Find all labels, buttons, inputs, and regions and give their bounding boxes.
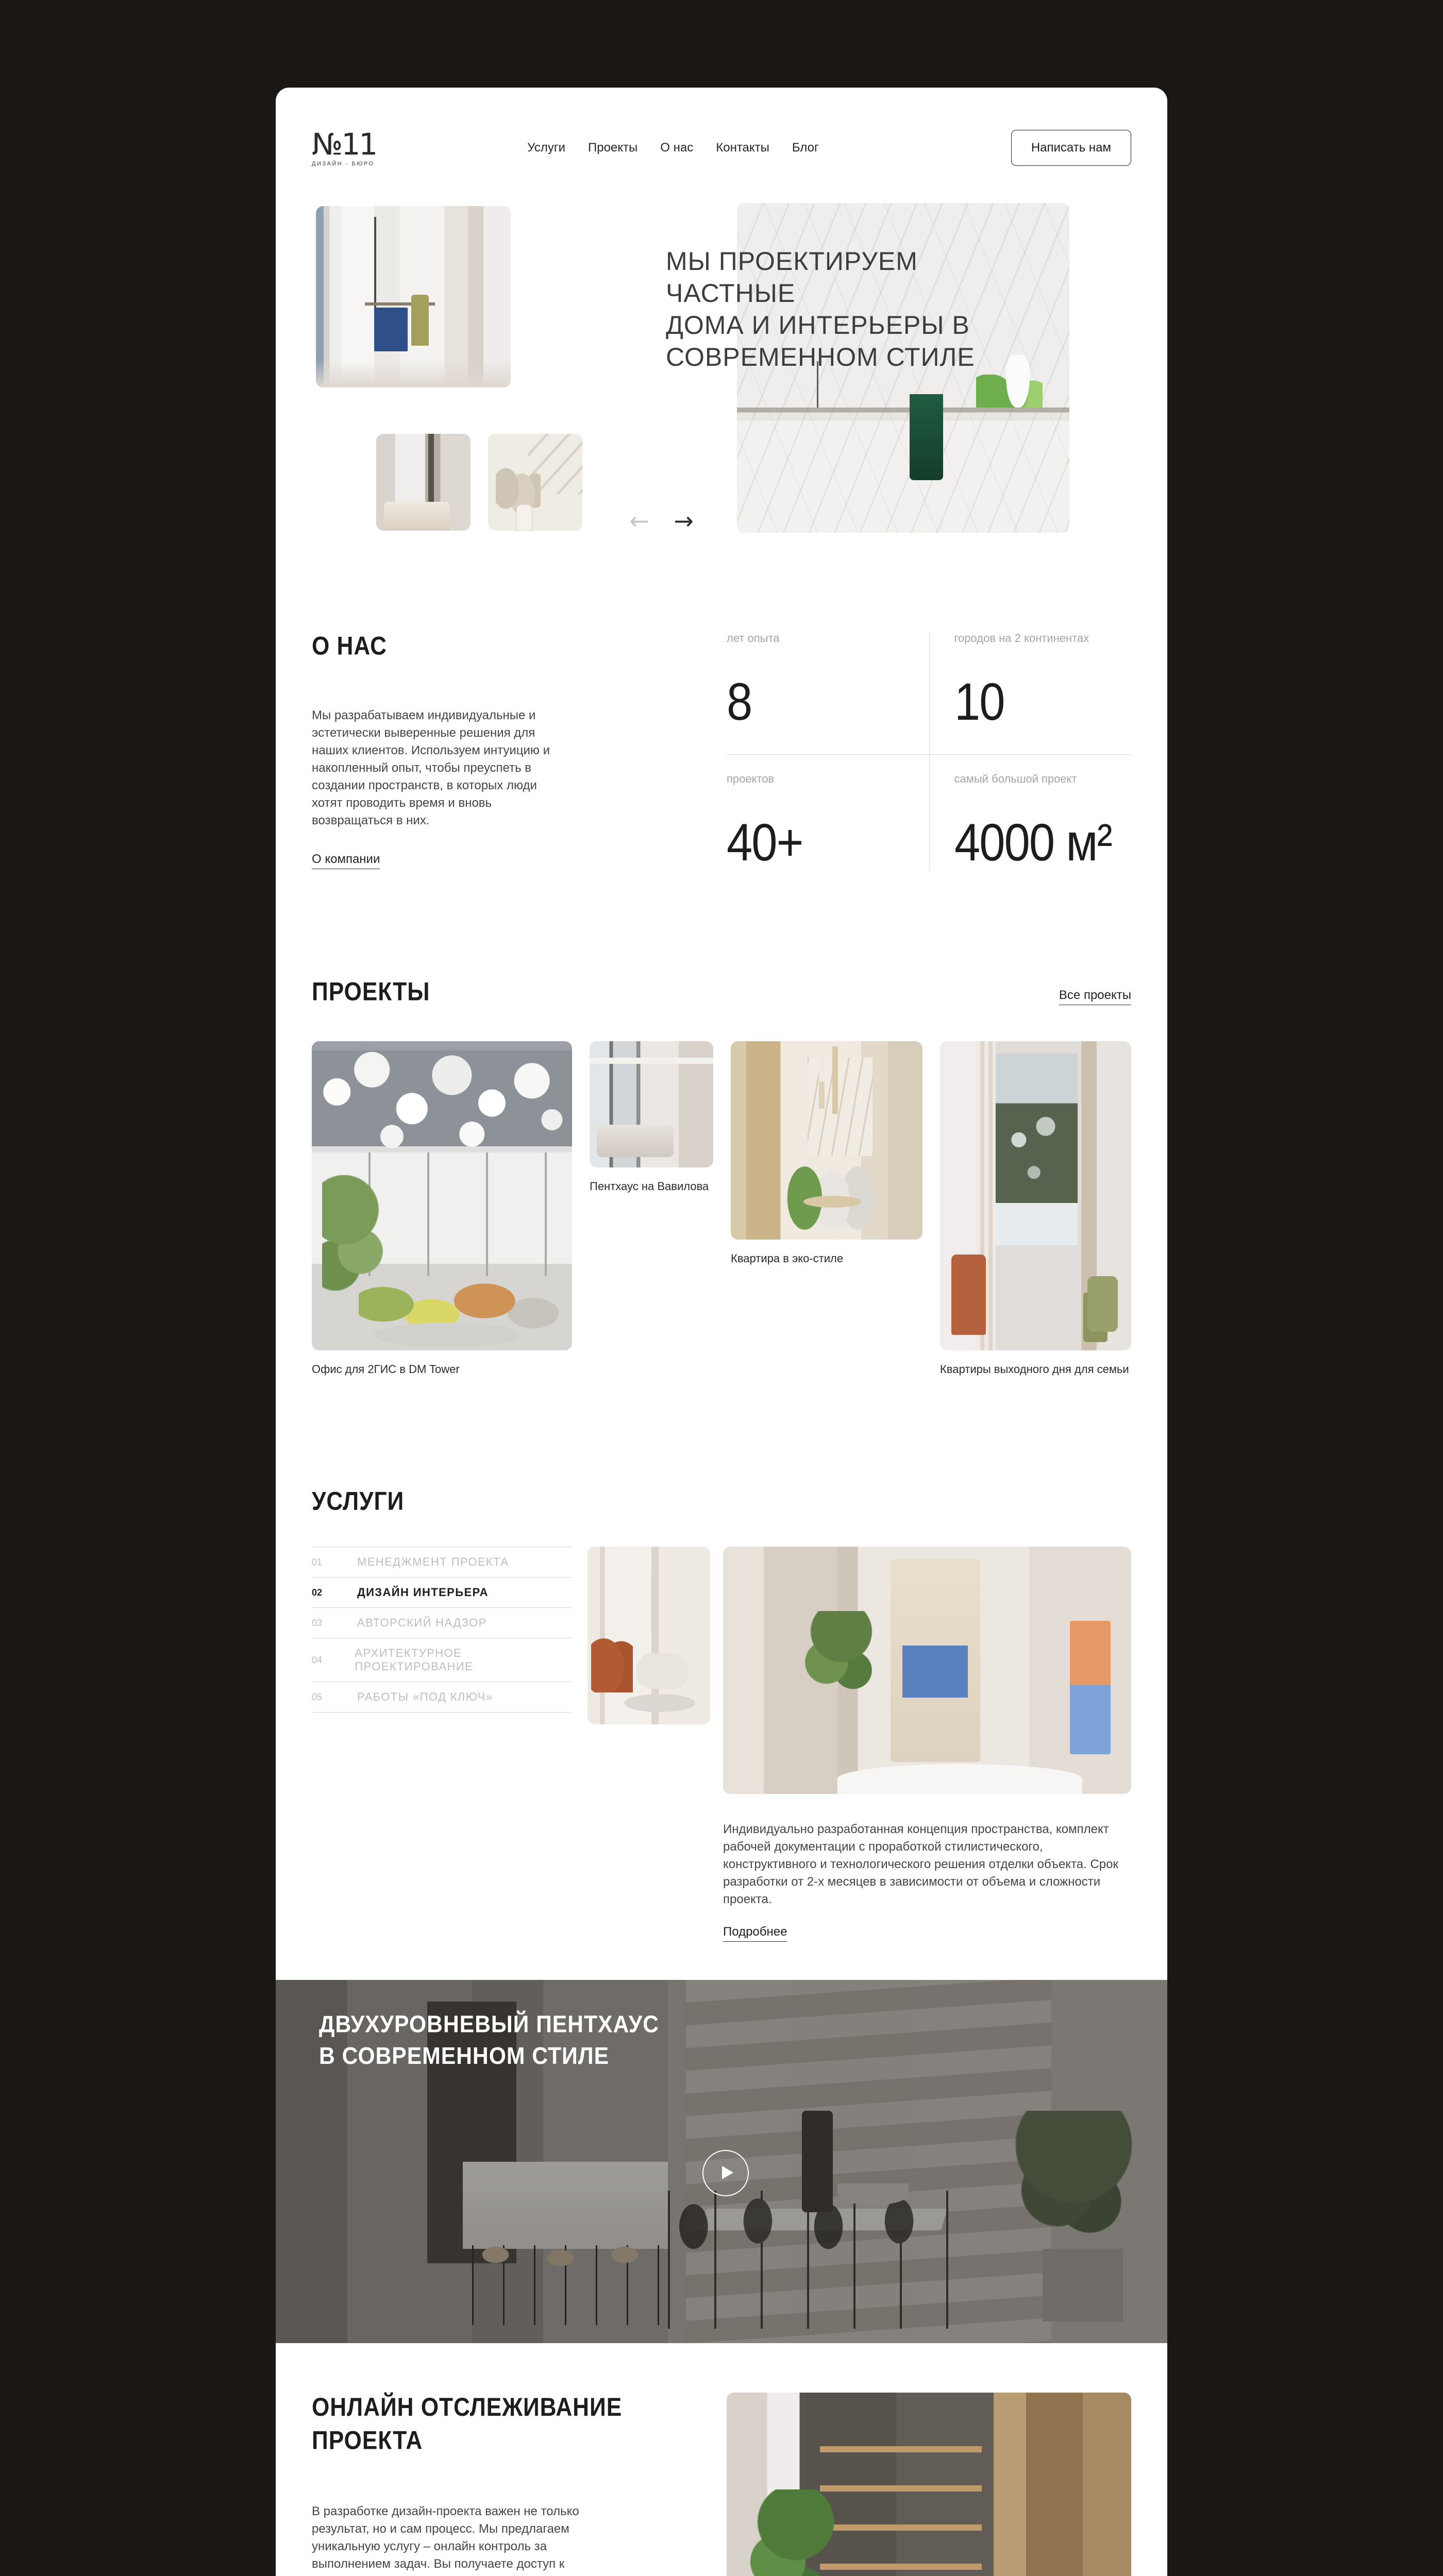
services-more-link[interactable]: Подробнее xyxy=(723,1925,787,1942)
about-section: О НАС Мы разрабатываем индивидуальные и … xyxy=(312,632,1131,871)
project-caption: Квартиры выходного дня для семьи xyxy=(940,1363,1131,1376)
project-card-eco[interactable]: Квартира в эко-стиле xyxy=(731,1041,922,1265)
project-caption: Квартира в эко-стиле xyxy=(731,1252,922,1265)
about-heading: О НАС xyxy=(312,631,569,660)
stat-projects: проектов 40+ xyxy=(727,755,929,871)
project-image-penthouse xyxy=(590,1041,713,1167)
hero-section: МЫ ПРОЕКТИРУЕМ ЧАСТНЫЕДОМА И ИНТЕРЬЕРЫ В… xyxy=(312,201,1131,545)
services-detail: Индивидуально разработанная концепция пр… xyxy=(723,1547,1131,1942)
tracking-section: ОНЛАЙН ОТСЛЕЖИВАНИЕПРОЕКТА В разработке … xyxy=(312,2393,1131,2576)
service-item-turnkey[interactable]: 05 РАБОТЫ «ПОД КЛЮЧ» xyxy=(312,1682,572,1713)
service-item-architecture[interactable]: 04 АРХИТЕКТУРНОЕ ПРОЕКТИРОВАНИЕ xyxy=(312,1638,572,1682)
project-card-weekend[interactable]: Квартиры выходного дня для семьи xyxy=(940,1041,1131,1376)
nav-item-projects[interactable]: Проекты xyxy=(588,141,637,155)
nav-item-contacts[interactable]: Контакты xyxy=(716,141,769,155)
stat-cities: городов на 2 континентах 10 xyxy=(929,632,1132,755)
nav-item-about[interactable]: О нас xyxy=(660,141,693,155)
project-caption: Пентхаус на Вавилова xyxy=(590,1180,713,1193)
services-small-image xyxy=(588,1547,710,1724)
logo-caption: ДИЗАЙН - БЮРО xyxy=(312,161,376,167)
arrow-right-icon[interactable]: → xyxy=(674,509,694,533)
page-card: №11 ДИЗАЙН - БЮРО Услуги Проекты О нас К… xyxy=(276,88,1167,2576)
tracking-big-image xyxy=(727,2393,1131,2576)
services-big-image xyxy=(723,1547,1131,1794)
projects-section: ПРОЕКТЫ Все проекты Офис для 2ГИС в DM T… xyxy=(312,977,1131,1376)
project-caption: Офис для 2ГИС в DM Tower xyxy=(312,1363,572,1376)
play-icon xyxy=(722,2166,733,2179)
logo-number: №11 xyxy=(312,129,376,159)
services-section: УСЛУГИ 01 МЕНЕДЖМЕНТ ПРОЕКТА 02 ДИЗАЙН И… xyxy=(312,1487,1131,1942)
projects-heading: ПРОЕКТЫ xyxy=(312,976,430,1006)
video-section: ДВУХУРОВНЕВЫЙ ПЕНТХАУСВ СОВРЕМЕННОМ СТИЛ… xyxy=(276,1980,1167,2343)
project-card-office[interactable]: Офис для 2ГИС в DM Tower xyxy=(312,1041,572,1376)
logo[interactable]: №11 ДИЗАЙН - БЮРО xyxy=(312,129,376,167)
projects-grid: Офис для 2ГИС в DM Tower Пентхаус на Вав… xyxy=(312,1041,1131,1376)
about-text: Мы разрабатываем индивидуальные и эстети… xyxy=(312,707,557,829)
arrow-left-icon[interactable]: ← xyxy=(629,509,649,533)
play-button[interactable] xyxy=(702,2150,749,2196)
project-image-office xyxy=(312,1041,572,1350)
all-projects-link[interactable]: Все проекты xyxy=(1059,988,1131,1005)
tracking-text: В разработке дизайн-проекта важен не тол… xyxy=(312,2503,593,2576)
stat-largest-project: самый большой проект 4000 м² xyxy=(929,755,1132,871)
services-description: Индивидуально разработанная концепция пр… xyxy=(723,1821,1122,1908)
hero-left-image xyxy=(316,206,511,387)
hero-slider-arrows: ← → xyxy=(629,509,694,533)
write-us-button[interactable]: Написать нам xyxy=(1011,130,1131,166)
main-nav: Услуги Проекты О нас Контакты Блог xyxy=(527,141,819,155)
hero-thumbnail-stairs[interactable] xyxy=(488,434,582,531)
services-list: 01 МЕНЕДЖМЕНТ ПРОЕКТА 02 ДИЗАЙН ИНТЕРЬЕР… xyxy=(312,1547,572,1713)
video-title: ДВУХУРОВНЕВЫЙ ПЕНТХАУСВ СОВРЕМЕННОМ СТИЛ… xyxy=(319,2009,659,2072)
service-item-supervision[interactable]: 03 АВТОРСКИЙ НАДЗОР xyxy=(312,1607,572,1638)
hero-thumbnail-bedroom[interactable] xyxy=(376,434,471,531)
about-stats: лет опыта 8 городов на 2 континентах 10 … xyxy=(727,632,1131,871)
service-item-interior-design[interactable]: 02 ДИЗАЙН ИНТЕРЬЕРА xyxy=(312,1577,572,1607)
stat-years: лет опыта 8 xyxy=(727,632,929,755)
services-heading: УСЛУГИ xyxy=(312,1486,1098,1516)
nav-item-blog[interactable]: Блог xyxy=(792,141,819,155)
about-company-link[interactable]: О компании xyxy=(312,852,380,869)
tracking-text-column: ОНЛАЙН ОТСЛЕЖИВАНИЕПРОЕКТА В разработке … xyxy=(312,2393,703,2576)
project-card-penthouse[interactable]: Пентхаус на Вавилова xyxy=(590,1041,713,1193)
hero-title: МЫ ПРОЕКТИРУЕМ ЧАСТНЫЕДОМА И ИНТЕРЬЕРЫ В… xyxy=(666,245,1047,373)
tracking-heading: ОНЛАЙН ОТСЛЕЖИВАНИЕПРОЕКТА xyxy=(312,2390,688,2457)
project-image-weekend xyxy=(940,1041,1131,1350)
project-image-eco xyxy=(731,1041,922,1240)
service-item-management[interactable]: 01 МЕНЕДЖМЕНТ ПРОЕКТА xyxy=(312,1547,572,1577)
nav-item-services[interactable]: Услуги xyxy=(527,141,565,155)
header: №11 ДИЗАЙН - БЮРО Услуги Проекты О нас К… xyxy=(312,88,1131,181)
about-text-column: О НАС Мы разрабатываем индивидуальные и … xyxy=(312,632,580,871)
